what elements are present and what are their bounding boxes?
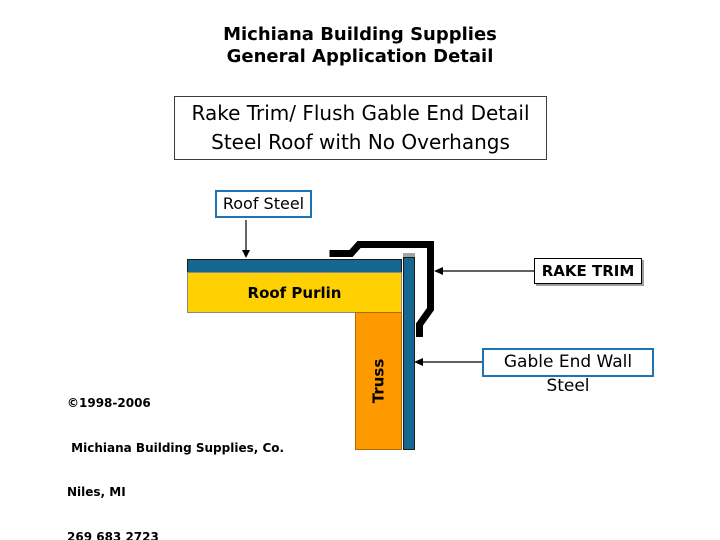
truss-label: Truss: [370, 359, 388, 404]
left-arrow-icon: [414, 358, 423, 366]
truss: Truss: [355, 312, 402, 450]
roof-steel-label: Roof Steel: [223, 194, 304, 213]
roof-steel-arrow: [242, 220, 250, 258]
roof-steel-strip: [187, 259, 402, 273]
roof-steel-callout: Roof Steel: [215, 190, 312, 218]
left-arrow-icon: [434, 267, 443, 275]
detail-title-line2: Steel Roof with No Overhangs: [175, 128, 546, 157]
gable-end-wall-steel-label: Gable End Wall Steel: [504, 352, 632, 396]
rake-trim-label: RAKE TRIM: [542, 262, 635, 280]
detail-subtitle: General Application Detail: [0, 46, 720, 68]
company-city: Niles, MI: [67, 485, 309, 500]
copyright-year: ©1998-2006: [67, 396, 309, 411]
gable-wall-arrow: [414, 358, 483, 366]
rake-trim-callout: RAKE TRIM: [534, 258, 642, 284]
roof-purlin: Roof Purlin: [187, 272, 402, 313]
page-title: Michiana Building Supplies General Appli…: [0, 24, 720, 68]
copyright-block: ©1998-2006 Michiana Building Supplies, C…: [67, 366, 309, 540]
roof-purlin-label: Roof Purlin: [248, 284, 342, 302]
detail-title-line1: Rake Trim/ Flush Gable End Detail: [175, 99, 546, 128]
gable-end-wall-steel-callout: Gable End Wall Steel: [482, 348, 654, 377]
slide-canvas: Michiana Building Supplies General Appli…: [0, 0, 720, 540]
company-title: Michiana Building Supplies: [0, 24, 720, 46]
rake-trim-arrow: [434, 267, 534, 275]
company-phone: 269 683 2723: [67, 530, 309, 540]
down-arrow-icon: [242, 250, 250, 258]
detail-title-box: Rake Trim/ Flush Gable End Detail Steel …: [174, 96, 547, 160]
company-name: Michiana Building Supplies, Co.: [67, 441, 309, 456]
gable-end-wall-steel-strip: [403, 257, 415, 450]
